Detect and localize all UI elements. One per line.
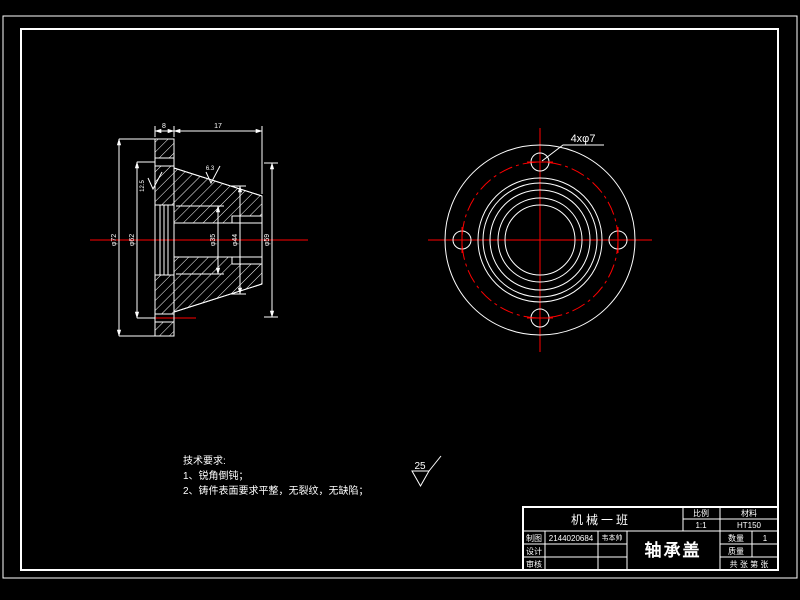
drawn-name: 韦本帅 <box>602 533 623 542</box>
qty-label: 数量 <box>728 533 744 543</box>
inner-border <box>21 29 778 570</box>
drawn-label: 制图 <box>526 533 542 543</box>
notes-item-2: 2、铸件表面要求平整，无裂纹，无缺陷； <box>183 484 369 497</box>
roughness-face-value: 12.5 <box>140 180 146 192</box>
sheet-border <box>3 16 797 578</box>
notes-heading: 技术要求: <box>183 454 226 467</box>
title-block: 机械一班 比例 1:1 材料 HT150 制图 2144020684 韦本帅 设… <box>523 507 778 570</box>
dim-right-inner: φ35 <box>210 234 217 246</box>
scale-value: 1:1 <box>695 521 707 530</box>
qty-value: 1 <box>763 534 768 543</box>
review-label: 审核 <box>526 559 542 569</box>
dim-left: φ72 φ62 <box>111 139 155 336</box>
cad-drawing-window: 8 17 φ72 φ62 φ35 φ44 φ59 12.5 <box>0 0 800 600</box>
general-roughness-symbol: 25 <box>412 456 441 486</box>
hole-callout-text: 4xφ7 <box>571 133 596 145</box>
outer-border <box>3 16 797 578</box>
part-name: 轴承盖 <box>645 540 702 560</box>
dim-right-mid: φ44 <box>232 234 239 246</box>
section-view: 8 17 φ72 φ62 φ35 φ44 φ59 12.5 <box>90 123 308 336</box>
technical-notes: 技术要求: 1、锐角倒钝； 2、铸件表面要求平整，无裂纹，无缺陷； <box>183 454 369 497</box>
sheets-label: 共 张 第 张 <box>730 559 769 569</box>
front-view: 4xφ7 <box>428 128 652 352</box>
dim-right-outer: φ59 <box>264 234 271 246</box>
hole-callout-leader <box>542 145 604 161</box>
general-roughness-value: 25 <box>414 461 426 472</box>
class-name: 机械一班 <box>571 512 631 527</box>
scale-label: 比例 <box>693 508 709 518</box>
mass-label: 质量 <box>728 546 744 556</box>
material-value: HT150 <box>737 521 762 530</box>
notes-item-1: 1、锐角倒钝； <box>183 469 249 482</box>
design-label: 设计 <box>526 546 542 556</box>
roughness-triangle <box>412 471 429 486</box>
dim-body-width: 17 <box>214 123 222 130</box>
roughness-tail <box>429 456 441 471</box>
dim-left-outer: φ72 <box>111 234 118 246</box>
drawn-id: 2144020684 <box>549 534 594 543</box>
material-label: 材料 <box>741 508 757 518</box>
drawing-canvas: 8 17 φ72 φ62 φ35 φ44 φ59 12.5 <box>0 0 800 600</box>
hole-callout: 4xφ7 <box>542 133 604 161</box>
dim-flange-width: 8 <box>162 123 166 130</box>
dim-left-mid: φ62 <box>129 234 136 246</box>
roughness-taper-value: 6.3 <box>206 166 215 172</box>
